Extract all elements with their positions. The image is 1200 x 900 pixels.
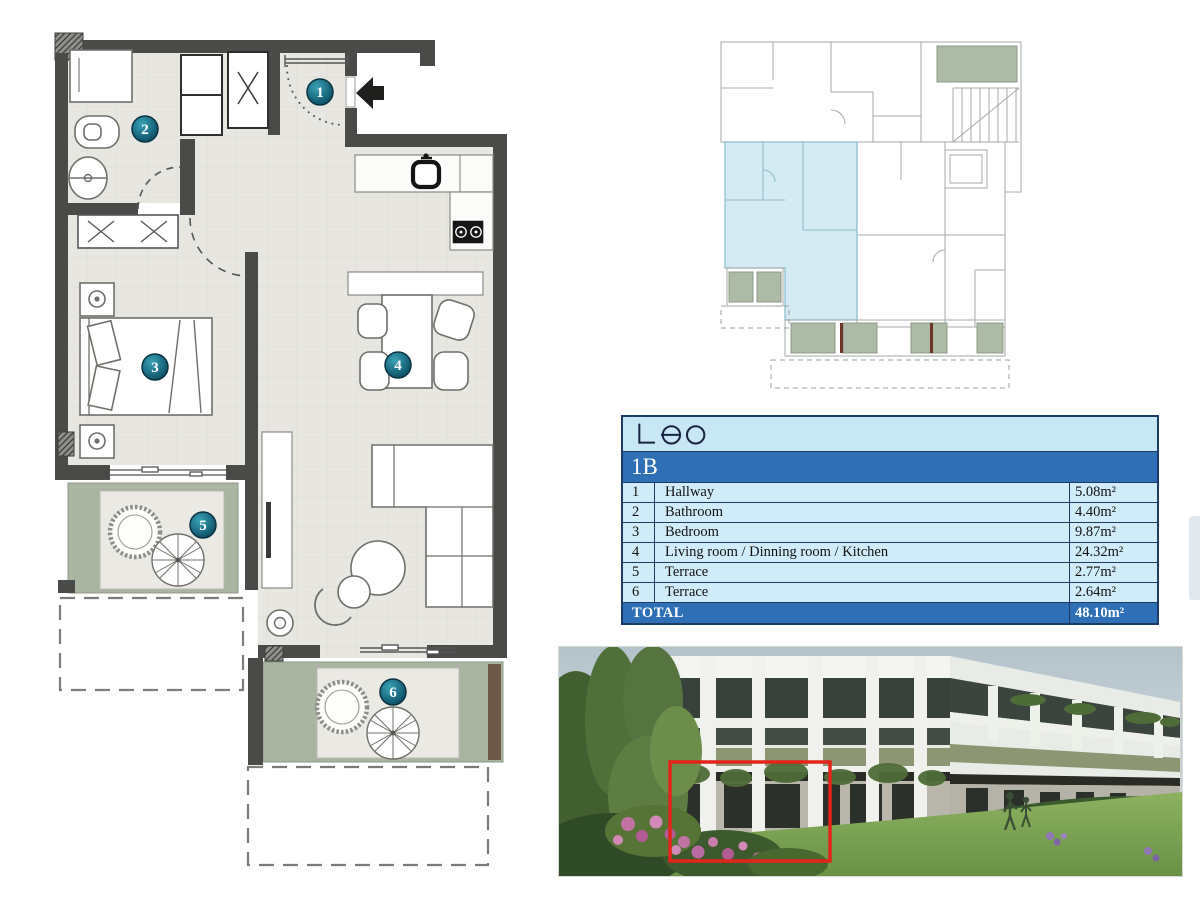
room-area: 4.40m² [1069, 503, 1157, 522]
room-name: Terrace [655, 563, 1069, 582]
logo-row: Leo [623, 417, 1157, 452]
terrace5-sliding-rail [110, 467, 226, 476]
parasol-icon [152, 534, 204, 586]
apartment-floor-plan: 1 2 3 4 5 6 [42, 32, 512, 877]
room-area: 2.64m² [1069, 583, 1157, 602]
room-area: 9.87m² [1069, 523, 1157, 542]
washer-icon [267, 610, 293, 636]
table-row: 1 Hallway 5.08m² [623, 483, 1157, 503]
chair-icon [360, 352, 389, 390]
room-area: 5.08m² [1069, 483, 1157, 502]
svg-text:1: 1 [316, 85, 324, 101]
room-area: 24.32m² [1069, 543, 1157, 562]
table-row: 5 Terrace 2.77m² [623, 563, 1157, 583]
room-area: 2.77m² [1069, 563, 1157, 582]
nightstand-icon [80, 283, 114, 316]
parasol-icon [367, 707, 419, 759]
svg-text:6: 6 [389, 685, 397, 701]
entry-opening [346, 77, 355, 107]
key-plan-elevator [945, 150, 987, 188]
room-name: Bathroom [655, 503, 1069, 522]
cupboard-icon [181, 55, 222, 135]
svg-text:5: 5 [199, 518, 207, 534]
unit-id: 1B [631, 454, 658, 480]
room-marker-6: 6 [380, 679, 406, 705]
wardrobe-icon [78, 215, 178, 248]
room-number: 4 [623, 543, 655, 562]
room-name: Bedroom [655, 523, 1069, 542]
svg-text:4: 4 [394, 358, 402, 374]
stove-icon [452, 220, 484, 244]
table-row: 4 Living room / Dinning room / Kitchen 2… [623, 543, 1157, 563]
room-number: 6 [623, 583, 655, 602]
total-row: TOTAL 48.10m² [623, 603, 1157, 623]
room-name: Living room / Dinning room / Kitchen [655, 543, 1069, 562]
render-building-near [670, 656, 950, 832]
room-marker-2: 2 [132, 116, 158, 142]
building-render-photo [558, 646, 1183, 877]
unit-area-table: Leo 1B 1 Hallway 5.08m² 2 Bathroom 4.40m… [621, 415, 1159, 625]
table-row: 6 Terrace 2.64m² [623, 583, 1157, 603]
room-marker-1: 1 [307, 79, 333, 105]
kitchen-island [348, 272, 483, 295]
side-table-icon [338, 576, 370, 608]
entrance-arrow-icon [356, 77, 384, 109]
total-label: TOTAL [623, 603, 1069, 623]
brochure-page: 1 2 3 4 5 6 [0, 0, 1200, 900]
room-number: 2 [623, 503, 655, 522]
sink-icon [69, 157, 107, 199]
building-key-plan [713, 30, 1031, 398]
room-marker-3: 3 [142, 354, 168, 380]
room-number: 5 [623, 563, 655, 582]
chair-icon [358, 304, 387, 338]
page-edge-fragment [1189, 516, 1200, 600]
toilet-icon [75, 116, 119, 148]
table-row: 2 Bathroom 4.40m² [623, 503, 1157, 523]
brand-logo [632, 421, 716, 447]
svg-text:2: 2 [141, 122, 149, 138]
room-number: 1 [623, 483, 655, 502]
closet-icon [228, 52, 268, 128]
svg-text:3: 3 [151, 360, 159, 376]
room-name: Hallway [655, 483, 1069, 502]
room-marker-4: 4 [385, 352, 411, 378]
room-number: 3 [623, 523, 655, 542]
total-area: 48.10m² [1069, 603, 1157, 623]
chair-icon [434, 352, 468, 390]
nightstand-icon [80, 425, 114, 458]
tv-sideboard [262, 432, 292, 588]
room-name: Terrace [655, 583, 1069, 602]
room-marker-5: 5 [190, 512, 216, 538]
unit-id-row: 1B [623, 452, 1157, 483]
table-row: 3 Bedroom 9.87m² [623, 523, 1157, 543]
